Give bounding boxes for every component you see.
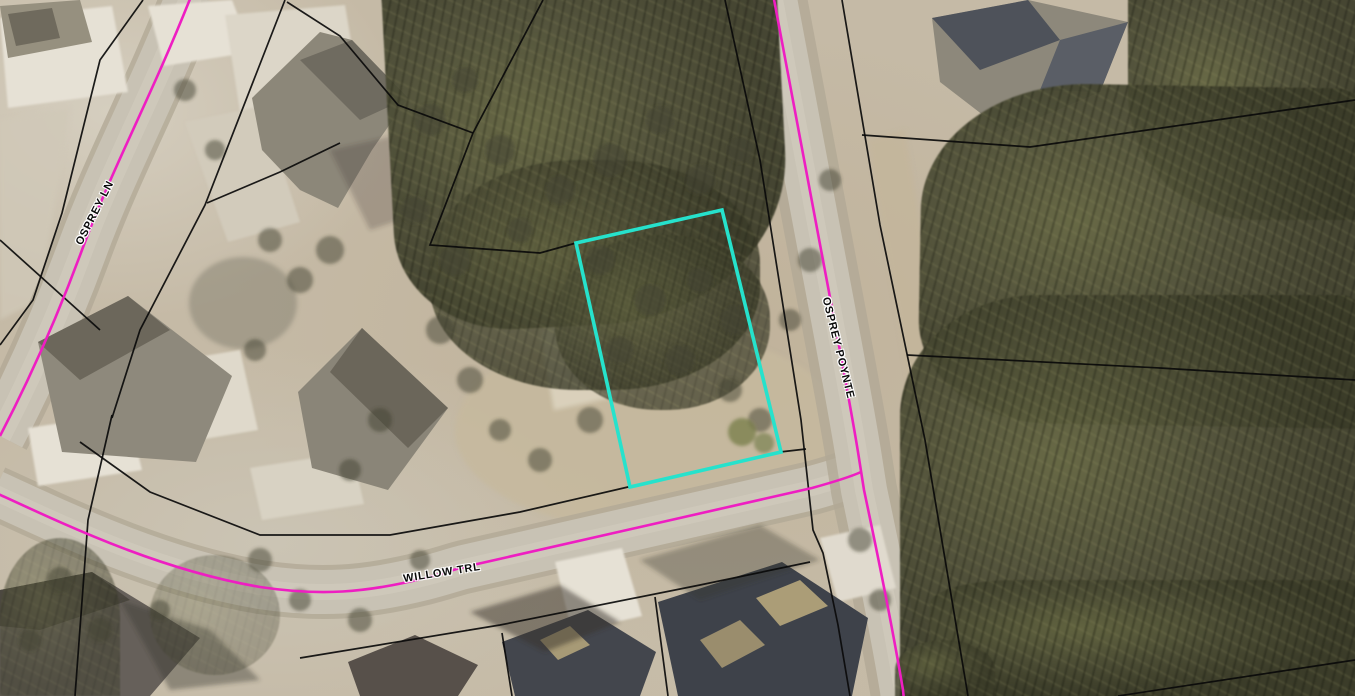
parcel-boundary-line [1118, 660, 1355, 696]
tree-canopy [593, 143, 627, 177]
tree-canopy [779, 309, 801, 331]
tree-canopy [718, 378, 742, 402]
tree-canopy [150, 600, 170, 620]
scattered-trees [19, 67, 891, 651]
tree-canopy [316, 236, 344, 264]
tree-canopy [646, 106, 674, 134]
tree-canopy [339, 459, 361, 481]
tree-canopy [577, 407, 603, 433]
parcel-boundary-line [207, 143, 340, 203]
tree-canopy [348, 608, 372, 632]
tree-canopy [47, 567, 73, 593]
tree-canopy [798, 248, 822, 272]
aerial-map-canvas[interactable]: OSPREY LN WILLOW TRL OSPREY POYNTE [0, 0, 1355, 696]
tree-canopy [585, 245, 615, 275]
road-centerlines [0, 0, 904, 696]
tree-canopy [174, 79, 196, 101]
tree-canopy [819, 169, 841, 191]
tree-canopy [439, 244, 471, 276]
parcel-boundary-line [862, 100, 1355, 147]
tree-canopy [19, 629, 41, 651]
tree-canopy [489, 419, 511, 441]
tree-canopy [414, 104, 446, 136]
tree-canopy [507, 217, 533, 243]
parcel-boundary-line [300, 562, 810, 658]
parcel-boundary-line [75, 415, 112, 696]
parcel-boundary-line [80, 442, 806, 535]
tree-canopy [401, 196, 429, 224]
shrub [728, 418, 756, 446]
tree-canopy [545, 175, 575, 205]
parcel-boundary-line [655, 597, 668, 696]
tree-canopy [457, 367, 483, 393]
parcel-boundary-line [502, 633, 512, 696]
tree-canopy [368, 408, 392, 432]
parcel-boundary-line [907, 355, 1355, 380]
tree-canopy [244, 339, 266, 361]
tree-canopy [665, 345, 695, 375]
parcel-boundary-line [0, 240, 100, 330]
tree-canopy [88, 618, 112, 642]
shrub [754, 433, 774, 453]
tree-canopy [248, 548, 272, 572]
parcel-boundary-line [0, 0, 143, 345]
tree-canopy [634, 284, 666, 316]
tree-canopy [606, 336, 634, 364]
tree-canopy [528, 448, 552, 472]
tree-canopy [410, 550, 430, 570]
tree-canopy [426, 316, 454, 344]
tree-canopy [485, 135, 515, 165]
tree-canopy [727, 137, 753, 163]
tree-canopy [687, 267, 713, 293]
tree-canopy [685, 165, 715, 195]
tree-canopy [205, 140, 225, 160]
tree-canopy [848, 528, 872, 552]
parcel-boundary-line [473, 0, 543, 133]
tree-canopy [258, 228, 282, 252]
parcel-boundary-line [842, 0, 968, 696]
tree-canopy [452, 67, 478, 93]
gis-vector-overlay [0, 0, 1355, 696]
parcel-boundary-line [287, 2, 473, 133]
tree-canopy [287, 267, 313, 293]
